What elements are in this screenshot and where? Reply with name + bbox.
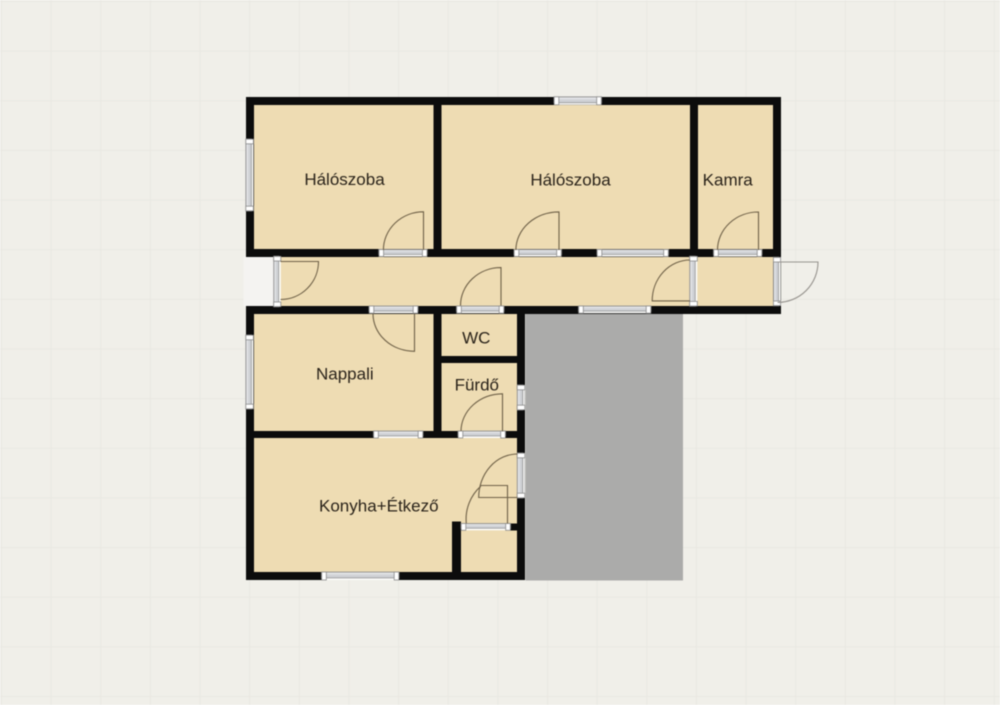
svg-text:Nappali: Nappali [316, 365, 374, 384]
svg-text:Konyha+Étkező: Konyha+Étkező [319, 497, 439, 516]
svg-text:Hálószoba: Hálószoba [304, 170, 385, 189]
svg-text:WC: WC [462, 328, 490, 347]
svg-text:Hálószoba: Hálószoba [530, 170, 611, 189]
svg-text:Fürdő: Fürdő [455, 376, 499, 395]
svg-text:Kamra: Kamra [703, 170, 754, 189]
